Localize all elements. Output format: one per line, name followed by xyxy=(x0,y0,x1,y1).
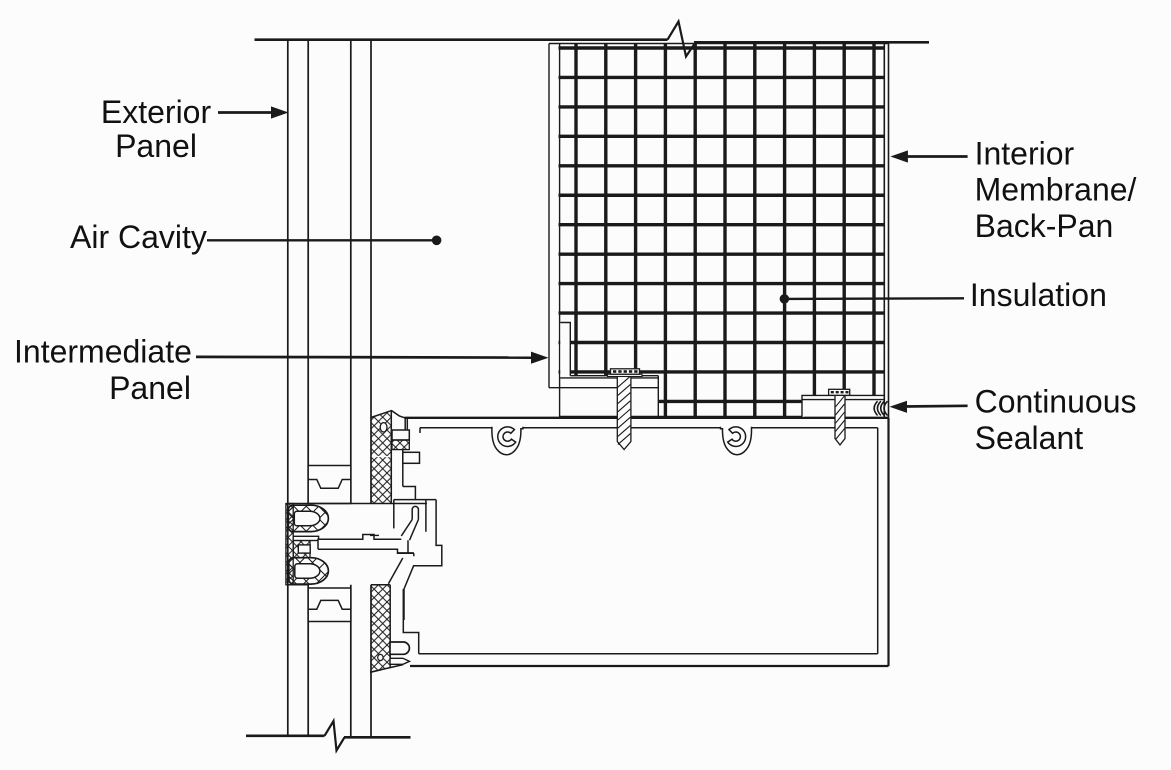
svg-text:Panel: Panel xyxy=(115,128,197,164)
svg-text:Membrane/: Membrane/ xyxy=(975,171,1137,207)
svg-text:Exterior: Exterior xyxy=(101,94,212,130)
svg-text:Intermediate: Intermediate xyxy=(14,333,192,369)
svg-text:Interior: Interior xyxy=(975,135,1075,171)
svg-text:Back-Pan: Back-Pan xyxy=(975,208,1114,244)
svg-text:Insulation: Insulation xyxy=(970,277,1107,313)
svg-text:Sealant: Sealant xyxy=(975,420,1084,456)
svg-text:Panel: Panel xyxy=(109,370,191,406)
svg-text:Air Cavity: Air Cavity xyxy=(70,219,207,255)
svg-text:Continuous: Continuous xyxy=(975,383,1137,419)
